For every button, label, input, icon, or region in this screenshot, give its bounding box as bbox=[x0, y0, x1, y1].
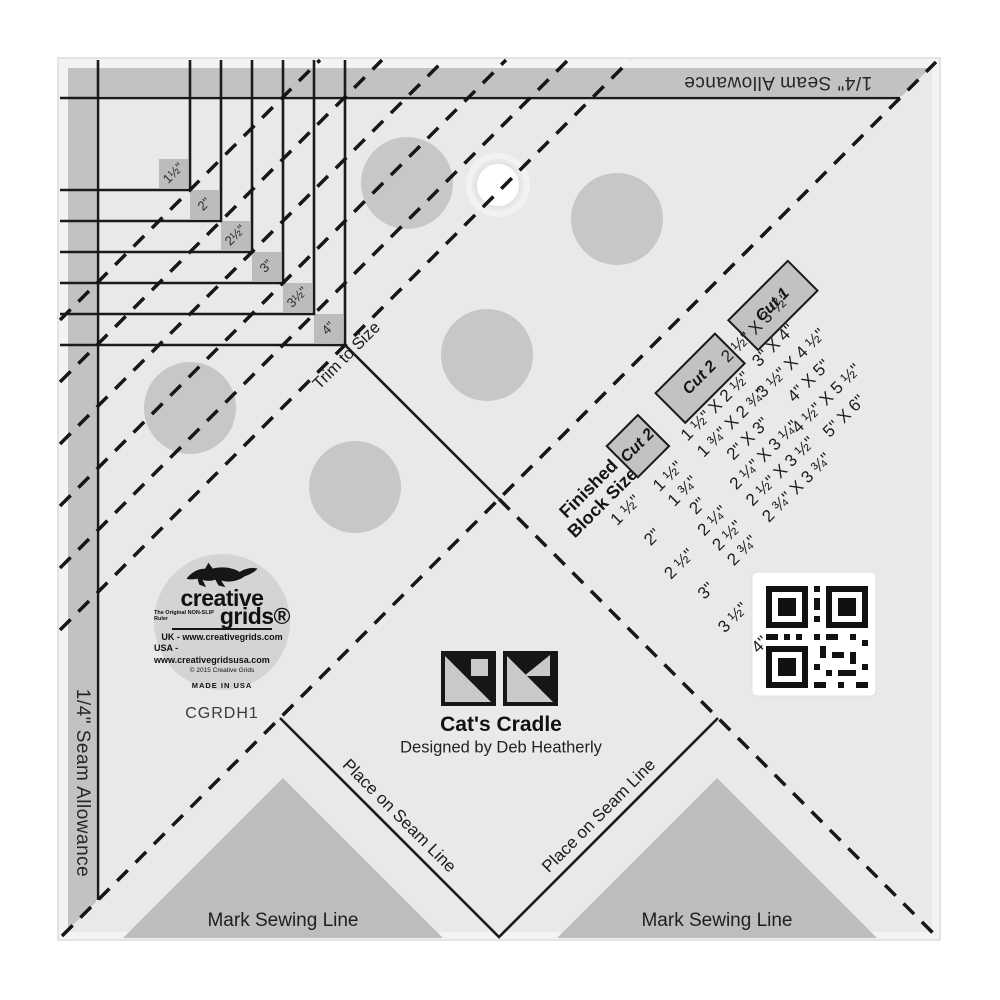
seam-allowance-left-label: 1/4" Seam Allowance bbox=[71, 689, 93, 877]
logo-uk-site: UK - www.creativegrids.com bbox=[161, 632, 282, 644]
block-designer: Designed by Deb Heatherly bbox=[400, 739, 602, 758]
logo-tagline: The Original NON-SLIP Ruler bbox=[154, 610, 218, 622]
block-title: Cat's Cradle bbox=[440, 713, 562, 737]
mark-sewing-line-left: Mark Sewing Line bbox=[207, 910, 358, 932]
logo-usa-site: USA - www.creativegridsusa.com bbox=[154, 643, 290, 666]
model-number: CGRDH1 bbox=[185, 705, 259, 723]
seam-allowance-top-label: 1/4" Seam Allowance bbox=[684, 71, 872, 93]
creative-grids-logo: creative The Original NON-SLIP Ruler gri… bbox=[154, 554, 290, 690]
logo-made-in-usa: MADE IN USA bbox=[192, 681, 253, 690]
logo-divider bbox=[172, 628, 272, 630]
ruler-photo: 1/4" Seam Allowance 1/4" Seam Allowance … bbox=[0, 0, 1000, 1000]
logo-brand-line2: grids® bbox=[220, 607, 290, 625]
mark-sewing-line-right: Mark Sewing Line bbox=[641, 910, 792, 932]
logo-copyright: © 2015 Creative Grids bbox=[190, 667, 254, 674]
